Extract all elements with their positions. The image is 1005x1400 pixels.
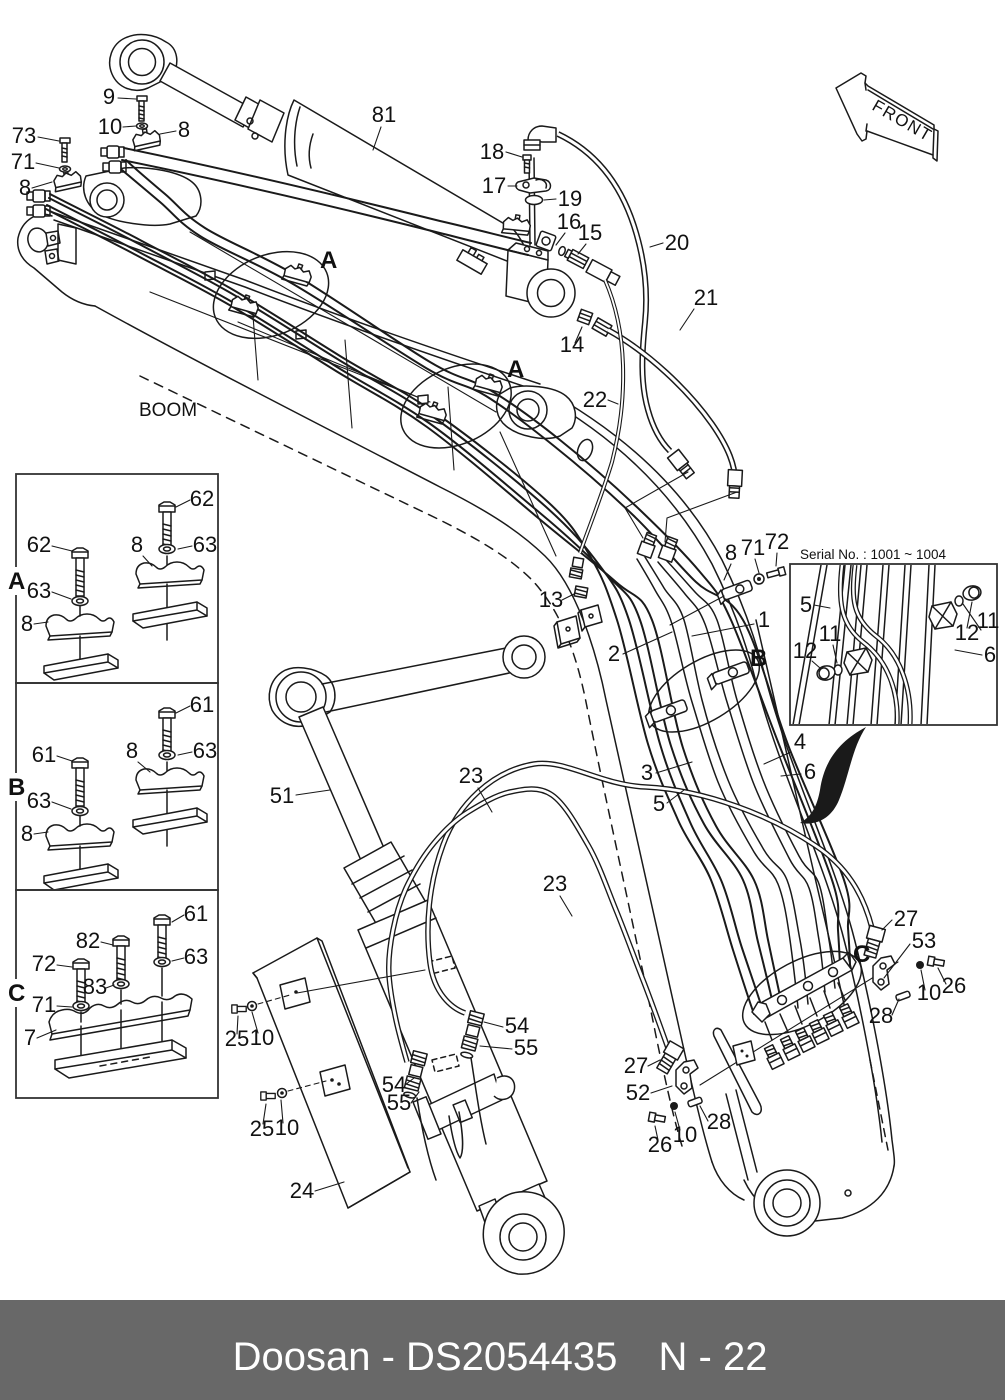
svg-text:61: 61	[190, 692, 214, 717]
svg-text:63: 63	[193, 738, 217, 763]
svg-text:73: 73	[12, 123, 36, 148]
svg-text:53: 53	[912, 928, 936, 953]
svg-text:62: 62	[190, 486, 214, 511]
svg-text:3: 3	[641, 760, 653, 785]
svg-text:8: 8	[178, 117, 190, 142]
svg-text:6: 6	[804, 759, 816, 784]
svg-text:52: 52	[626, 1080, 650, 1105]
svg-text:A: A	[320, 247, 337, 274]
svg-text:55: 55	[387, 1090, 411, 1115]
svg-text:Serial No. : 1001 ~ 1004: Serial No. : 1001 ~ 1004	[800, 547, 946, 562]
svg-text:10: 10	[673, 1122, 697, 1147]
svg-text:8: 8	[19, 175, 31, 200]
svg-text:28: 28	[869, 1003, 893, 1028]
svg-text:B: B	[750, 645, 767, 672]
svg-text:72: 72	[32, 951, 56, 976]
svg-text:62: 62	[27, 532, 51, 557]
svg-text:12: 12	[955, 620, 979, 645]
svg-text:10: 10	[98, 114, 122, 139]
svg-text:A: A	[8, 568, 25, 595]
svg-text:N - 22: N - 22	[659, 1335, 768, 1379]
svg-text:10: 10	[917, 980, 941, 1005]
svg-text:51: 51	[270, 783, 294, 808]
svg-text:21: 21	[694, 285, 718, 310]
svg-text:A: A	[507, 356, 524, 383]
svg-text:71: 71	[741, 535, 765, 560]
svg-text:19: 19	[558, 186, 582, 211]
svg-text:20: 20	[665, 230, 689, 255]
svg-text:61: 61	[184, 901, 208, 926]
svg-text:55: 55	[514, 1035, 538, 1060]
svg-text:5: 5	[800, 592, 812, 617]
svg-text:23: 23	[543, 871, 567, 896]
svg-text:25: 25	[250, 1116, 274, 1141]
svg-text:27: 27	[624, 1053, 648, 1078]
svg-text:26: 26	[648, 1132, 672, 1157]
svg-text:81: 81	[372, 102, 396, 127]
svg-text:9: 9	[103, 84, 115, 109]
svg-text:17: 17	[482, 173, 506, 198]
svg-text:1: 1	[758, 607, 770, 632]
svg-text:13: 13	[539, 587, 563, 612]
svg-text:22: 22	[583, 387, 607, 412]
svg-text:Doosan - DS2054435: Doosan - DS2054435	[233, 1335, 618, 1379]
svg-text:26: 26	[942, 973, 966, 998]
svg-text:71: 71	[11, 149, 35, 174]
svg-text:83: 83	[83, 974, 107, 999]
svg-text:8: 8	[21, 821, 33, 846]
svg-text:BOOM: BOOM	[139, 400, 197, 421]
svg-text:24: 24	[290, 1178, 314, 1203]
svg-text:18: 18	[480, 139, 504, 164]
svg-text:6: 6	[984, 642, 996, 667]
svg-text:C: C	[8, 980, 25, 1007]
svg-text:82: 82	[76, 928, 100, 953]
svg-text:C: C	[853, 941, 870, 968]
svg-text:8: 8	[725, 540, 737, 565]
svg-text:4: 4	[794, 729, 806, 754]
svg-text:23: 23	[459, 763, 483, 788]
svg-text:63: 63	[27, 788, 51, 813]
svg-text:63: 63	[27, 578, 51, 603]
svg-text:71: 71	[32, 992, 56, 1017]
svg-text:63: 63	[184, 944, 208, 969]
svg-text:2: 2	[608, 641, 620, 666]
svg-text:10: 10	[250, 1025, 274, 1050]
svg-text:5: 5	[653, 791, 665, 816]
svg-text:72: 72	[765, 529, 789, 554]
svg-text:63: 63	[193, 532, 217, 557]
svg-text:8: 8	[131, 532, 143, 557]
svg-text:15: 15	[578, 220, 602, 245]
svg-text:14: 14	[560, 332, 584, 357]
svg-text:12: 12	[793, 638, 817, 663]
svg-text:8: 8	[21, 611, 33, 636]
svg-text:61: 61	[32, 742, 56, 767]
svg-text:B: B	[8, 774, 25, 801]
svg-text:28: 28	[707, 1109, 731, 1134]
svg-text:8: 8	[126, 738, 138, 763]
svg-text:10: 10	[275, 1115, 299, 1140]
svg-text:11: 11	[819, 621, 842, 646]
svg-text:7: 7	[24, 1025, 36, 1050]
